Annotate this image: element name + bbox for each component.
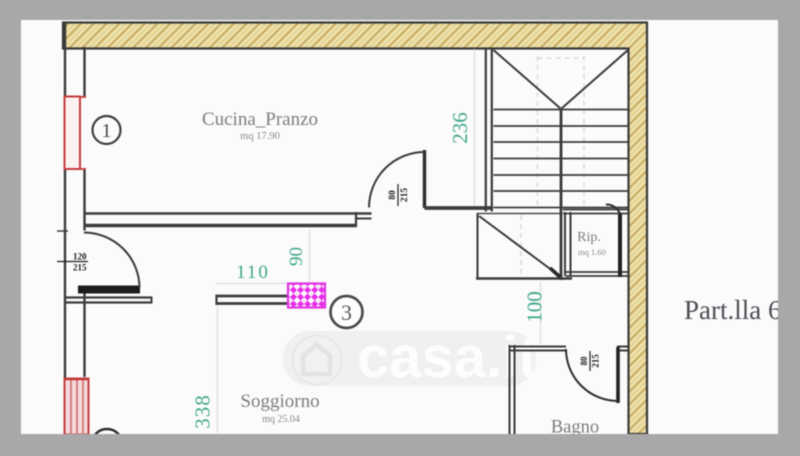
svg-text:80: 80	[579, 356, 589, 366]
svg-text:Rip.: Rip.	[577, 230, 601, 245]
svg-text:80: 80	[388, 190, 398, 200]
svg-text:215: 215	[591, 354, 601, 368]
svg-text:Part.lla 6: Part.lla 6	[684, 295, 781, 325]
svg-text:Soggiorno: Soggiorno	[240, 391, 319, 412]
svg-text:mq 1.60: mq 1.60	[578, 247, 606, 257]
svg-text:90: 90	[286, 247, 307, 266]
svg-text:mq 17.90: mq 17.90	[240, 131, 280, 142]
svg-text:1: 1	[102, 120, 112, 142]
svg-text:338: 338	[191, 394, 215, 429]
svg-text:110: 110	[236, 262, 270, 283]
svg-text:Cucina_Pranzo: Cucina_Pranzo	[202, 109, 318, 130]
svg-text:120: 120	[73, 252, 87, 262]
svg-text:100: 100	[523, 291, 547, 323]
svg-text:215: 215	[73, 263, 87, 273]
svg-text:3: 3	[341, 300, 352, 325]
svg-text:236: 236	[448, 112, 472, 144]
svg-text:215: 215	[400, 188, 410, 203]
svg-text:mq 25.04: mq 25.04	[262, 414, 300, 425]
